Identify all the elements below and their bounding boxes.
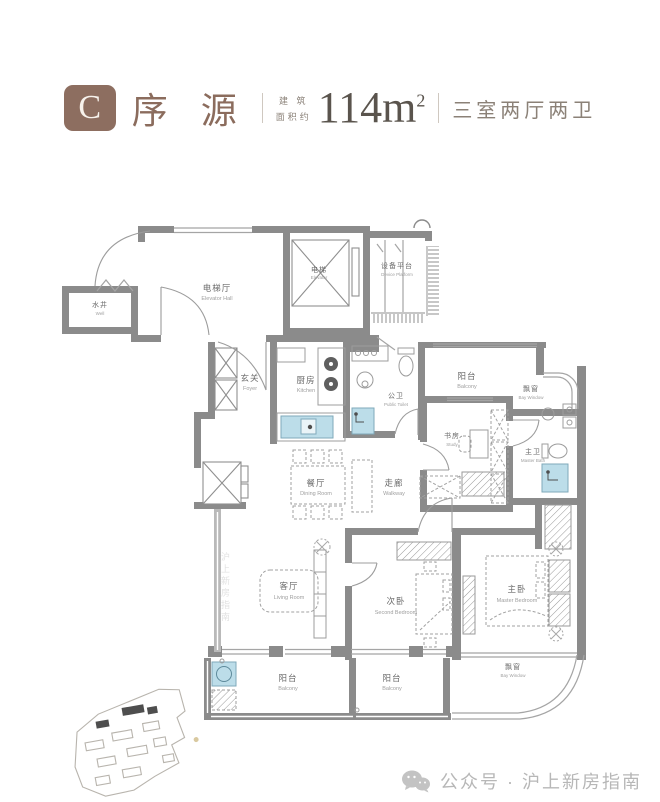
svg-text:Balcony: Balcony bbox=[382, 686, 402, 692]
plan-header: C 序 源 建 筑 面积约 114m2 三室两厅两卫 bbox=[0, 82, 660, 134]
lamp-icon bbox=[357, 372, 373, 388]
room-label-balcony-right: 阳台 bbox=[457, 371, 476, 381]
vent-notch bbox=[414, 220, 430, 228]
svg-text:Bay Window: Bay Window bbox=[500, 673, 526, 678]
area-value: 114m2 bbox=[318, 86, 426, 130]
fridge bbox=[277, 348, 305, 362]
room-label-dining: 餐厅 bbox=[306, 478, 325, 488]
room-label-balcony-left: 阳台 bbox=[278, 673, 297, 683]
bed-second bbox=[416, 574, 452, 634]
header-divider bbox=[262, 93, 263, 123]
wechat-label: 公众号 · 沪上新房指南 bbox=[440, 768, 642, 794]
svg-text:Well: Well bbox=[96, 311, 105, 316]
shafts bbox=[203, 240, 359, 504]
type-name: 序 源 bbox=[132, 82, 249, 134]
room-label-bay-window-right: 飘窗 bbox=[523, 384, 539, 393]
svg-text:Living Room: Living Room bbox=[274, 595, 305, 601]
svg-text:Kitchen: Kitchen bbox=[297, 388, 315, 394]
svg-text:Public Toilet: Public Toilet bbox=[384, 402, 409, 407]
room-label-public-toilet: 公卫 bbox=[388, 392, 404, 400]
stove-counter bbox=[318, 348, 345, 405]
room-label-well: 水井 bbox=[92, 300, 108, 309]
room-label-master-bedroom: 主卧 bbox=[507, 584, 526, 594]
room-label-elevator: 电梯 bbox=[311, 265, 327, 274]
vent-comb-right bbox=[428, 246, 439, 316]
svg-text:Dining Room: Dining Room bbox=[300, 491, 332, 497]
site-plan-sketch bbox=[64, 684, 205, 801]
toilet bbox=[549, 444, 567, 458]
room-label-walkway: 走廊 bbox=[384, 478, 403, 488]
area-number: 114m bbox=[318, 83, 417, 132]
svg-text:Study: Study bbox=[446, 442, 458, 447]
sofa bbox=[260, 570, 318, 612]
washing-machine bbox=[212, 662, 236, 686]
type-badge: C bbox=[64, 85, 116, 131]
desk bbox=[470, 430, 488, 458]
toilet bbox=[399, 356, 413, 376]
room-label-device-platform: 设备平台 bbox=[381, 261, 413, 270]
svg-text:Elevator Hall: Elevator Hall bbox=[201, 296, 232, 302]
room-label-balcony-mid: 阳台 bbox=[382, 673, 401, 683]
toilet-tank bbox=[398, 348, 414, 354]
area-label-line1: 建 筑 bbox=[276, 94, 312, 107]
svg-text:Walkway: Walkway bbox=[383, 491, 405, 497]
svg-text:Balcony: Balcony bbox=[457, 384, 477, 390]
svg-text:Second Bedroom: Second Bedroom bbox=[375, 610, 418, 616]
chair bbox=[459, 436, 471, 452]
svg-text:Bay Window: Bay Window bbox=[518, 395, 544, 400]
area-label: 建 筑 面积约 bbox=[276, 94, 312, 123]
wechat-watermark: 公众号 · 沪上新房指南 bbox=[401, 768, 642, 794]
svg-text:Master Bedroom: Master Bedroom bbox=[497, 598, 538, 604]
vent-comb-bottom bbox=[371, 314, 425, 323]
highlighted-buildings bbox=[94, 702, 159, 729]
shower bbox=[352, 408, 374, 434]
sideboard bbox=[352, 460, 372, 512]
floorplan-page: C 序 源 建 筑 面积约 114m2 三室两厅两卫 bbox=[0, 0, 660, 802]
wechat-icon bbox=[401, 769, 431, 793]
svg-text:Device Platform: Device Platform bbox=[381, 272, 413, 277]
area-sup: 2 bbox=[416, 90, 425, 110]
room-label-bay-window-bottom: 飘窗 bbox=[505, 662, 521, 671]
area-label-line2: 面积约 bbox=[276, 110, 312, 123]
shower bbox=[542, 464, 568, 492]
svg-text:Master Bath: Master Bath bbox=[521, 458, 546, 463]
room-label-foyer: 玄关 bbox=[240, 373, 259, 383]
room-label-master-bath: 主卫 bbox=[525, 447, 541, 456]
room-label-living: 客厅 bbox=[279, 581, 298, 591]
room-label-kitchen: 厨房 bbox=[296, 375, 315, 385]
layout-text: 三室两厅两卫 bbox=[452, 94, 596, 123]
svg-text:Foyer: Foyer bbox=[243, 386, 257, 392]
svg-text:Balcony: Balcony bbox=[278, 686, 298, 692]
header-divider-2 bbox=[438, 93, 439, 123]
room-label-second-bedroom: 次卧 bbox=[386, 596, 405, 606]
svg-text:Elevator: Elevator bbox=[311, 275, 328, 280]
toilet-tank bbox=[542, 444, 548, 458]
side-watermark: 沪上新房指南 bbox=[219, 552, 232, 624]
room-label-study: 书房 bbox=[444, 431, 460, 440]
room-label-elevator-hall: 电梯厅 bbox=[203, 283, 232, 293]
mop-pool bbox=[212, 690, 236, 710]
